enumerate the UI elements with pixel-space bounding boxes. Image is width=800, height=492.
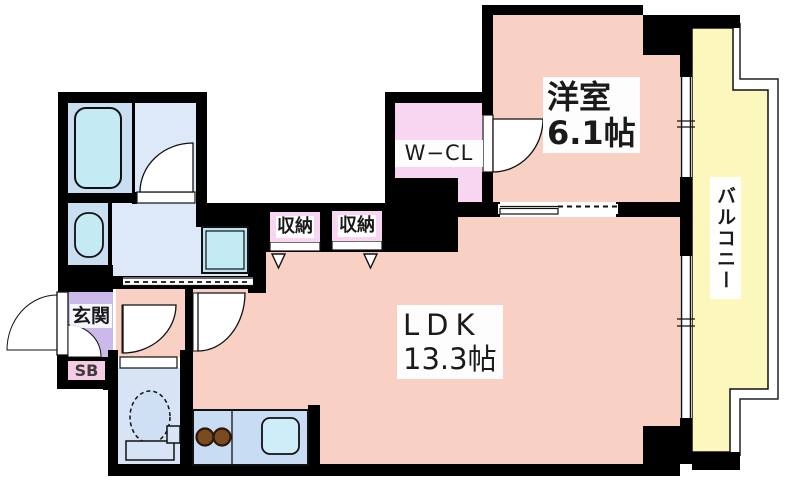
storage-left-label: 収納 [270, 212, 320, 242]
vanity-basin [75, 213, 103, 257]
kitchen-sink [262, 418, 299, 454]
western-room-label: 洋室 6.1帖 [543, 77, 640, 153]
washing-machine [202, 227, 248, 273]
kitchen-counter [193, 410, 308, 465]
floorplan: 洋室 6.1帖 LDK 13.3帖 W−CL 収納 収納 玄関 SB バルコニー [0, 0, 800, 492]
storage-right-label: 収納 [332, 211, 382, 241]
ldk-size: 13.3帖 [403, 342, 497, 376]
entrance-label: 玄関 [70, 301, 112, 328]
walk-in-closet-label: W−CL [395, 140, 483, 167]
floorplan-drawing [0, 0, 800, 492]
western-room-size: 6.1帖 [547, 115, 636, 151]
sliding-door-washroom [123, 277, 253, 286]
stove-burner [214, 429, 231, 446]
entrance-text: 玄関 [70, 304, 112, 328]
ldk-label: LDK 13.3帖 [397, 305, 503, 379]
bathtub [75, 108, 121, 188]
stove-burner [197, 429, 214, 446]
ldk-name: LDK [403, 308, 497, 342]
sliding-door-western-room [498, 204, 618, 214]
western-room-name: 洋室 [547, 79, 636, 115]
storage-left-text: 収納 [276, 216, 314, 238]
storage-right-text: 収納 [338, 215, 376, 237]
shoe-box-label: SB [68, 361, 105, 380]
balcony-label: バルコニー [710, 177, 741, 299]
